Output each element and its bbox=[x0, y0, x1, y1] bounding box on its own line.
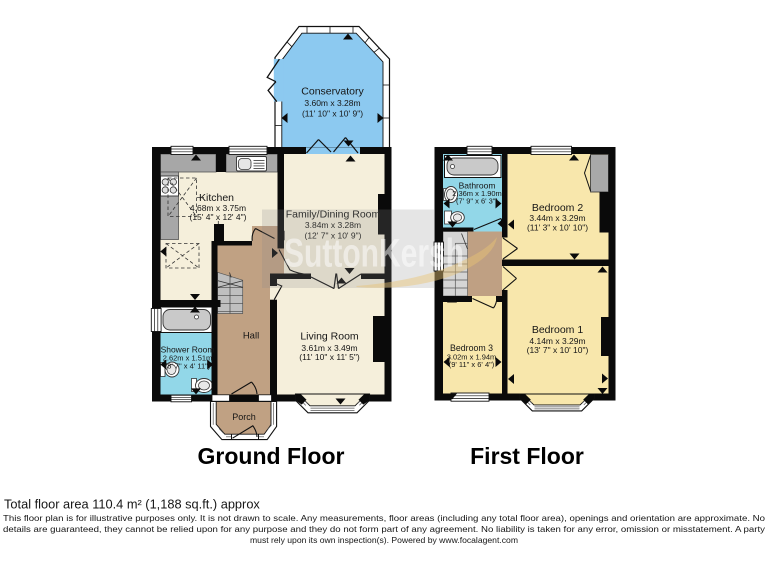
svg-text:(11' 10" x 11' 5"): (11' 10" x 11' 5") bbox=[299, 352, 360, 362]
svg-text:Living Room: Living Room bbox=[300, 331, 359, 343]
svg-text:First Floor: First Floor bbox=[470, 443, 584, 469]
svg-text:(8' 7" x 4' 11"): (8' 7" x 4' 11") bbox=[165, 361, 211, 370]
svg-text:(9' 11" x 6' 4"): (9' 11" x 6' 4") bbox=[449, 360, 495, 369]
svg-text:This floor plan is for illustr: This floor plan is for illustrative purp… bbox=[3, 513, 765, 523]
svg-text:Porch: Porch bbox=[232, 412, 256, 422]
svg-text:(7' 9" x 6' 3"): (7' 9" x 6' 3") bbox=[456, 197, 498, 206]
svg-text:must rely upon its own inspect: must rely upon its own inspection(s). Po… bbox=[250, 535, 518, 545]
svg-text:Bedroom 1: Bedroom 1 bbox=[532, 324, 584, 336]
svg-text:3.60m x 3.28m: 3.60m x 3.28m bbox=[304, 98, 360, 108]
svg-text:details are guaranteed, they c: details are guaranteed, they cannot be r… bbox=[3, 524, 766, 534]
svg-text:(11' 10" x 10' 9"): (11' 10" x 10' 9") bbox=[302, 108, 363, 118]
svg-text:Ground Floor: Ground Floor bbox=[198, 443, 345, 469]
svg-text:(15' 4" x 12' 4"): (15' 4" x 12' 4") bbox=[189, 212, 246, 222]
svg-text:Total floor area 110.4 m² (1,1: Total floor area 110.4 m² (1,188 sq.ft.)… bbox=[4, 497, 260, 512]
svg-text:(13' 7" x 10' 10"): (13' 7" x 10' 10") bbox=[527, 345, 589, 355]
svg-text:Bedroom 3: Bedroom 3 bbox=[450, 343, 493, 353]
svg-text:3.44m x 3.29m: 3.44m x 3.29m bbox=[529, 213, 585, 223]
svg-text:SuttonKersh: SuttonKersh bbox=[284, 232, 464, 276]
svg-text:(11' 3" x 10' 10"): (11' 3" x 10' 10") bbox=[527, 223, 588, 233]
svg-text:Hall: Hall bbox=[243, 331, 259, 342]
svg-text:Conservatory: Conservatory bbox=[301, 86, 364, 98]
